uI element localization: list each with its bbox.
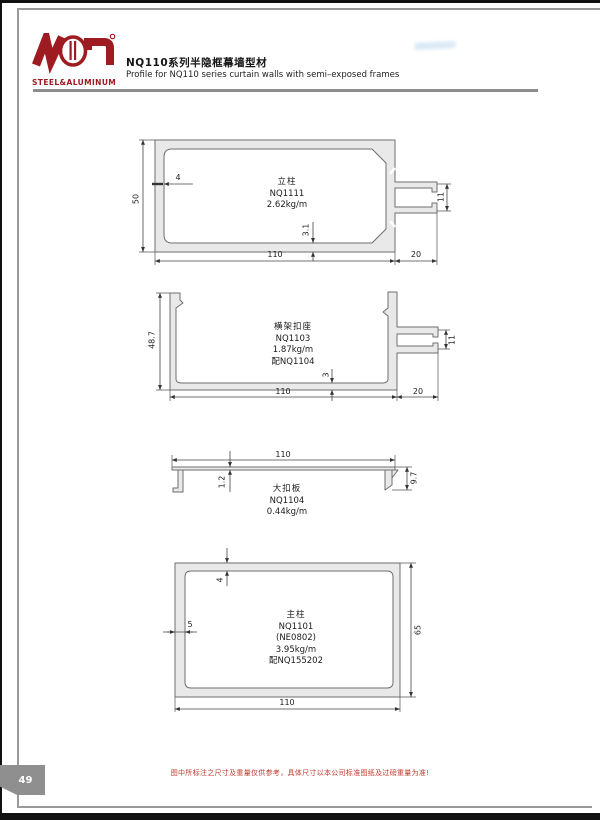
- profile-weight: 1.87kg/m: [243, 345, 343, 357]
- profile-weight: 2.62kg/m: [242, 200, 332, 212]
- profile-match: 配NQ1104: [243, 357, 343, 369]
- dim-tab-length-label: 20: [413, 387, 423, 396]
- dim-width-label: 110: [275, 450, 290, 459]
- dim-side-wall-label: 5: [187, 620, 192, 629]
- profile-code: NQ1101: [246, 622, 346, 634]
- dim-wall-label: 4: [175, 173, 180, 182]
- profile-info-2: 横架扣座 NQ1103 1.87kg/m 配NQ1104: [243, 322, 343, 368]
- profile-info-4: 主柱 NQ1101 (NE0802) 3.95kg/m 配NQ155202: [246, 610, 346, 668]
- profile-outline: [172, 467, 395, 470]
- logo-glyph-stroke: [70, 41, 72, 60]
- page-title-en: Profile for NQ110 series curtain walls w…: [126, 70, 399, 80]
- footer-note: 图中所标注之尺寸及重量仅供参考，具体尺寸以本公司标准图纸及过磅重量为准!: [171, 768, 430, 778]
- dim-base-label: 3: [322, 372, 331, 377]
- dim-width-label: 110: [267, 250, 282, 259]
- dim-top-wall-label: 4: [216, 577, 225, 582]
- catalog-page: STEEL&ALUMINUM NQ110系列半隐框幕墙型材 Profile fo…: [0, 0, 600, 820]
- profile-right-leg: [385, 470, 392, 490]
- profile-code: NQ1111: [242, 189, 332, 201]
- profile-weight: 0.44kg/m: [237, 507, 337, 519]
- profile-alt-code: (NE0802): [246, 633, 346, 645]
- profile-left-leg: [173, 470, 183, 492]
- profile-code: NQ1104: [237, 496, 337, 508]
- dim-tab-gap-label: 11: [448, 335, 457, 345]
- logo: STEEL&ALUMINUM: [32, 33, 122, 89]
- dim-width-label: 110: [275, 387, 290, 396]
- dim-leg-label: 9.7: [410, 472, 419, 485]
- logo-trademark-icon: [110, 34, 114, 38]
- profile-right-gusset: [392, 470, 398, 478]
- scan-artifact: [414, 41, 456, 50]
- profile-match: 配NQ155202: [246, 656, 346, 668]
- logo-hook-shape: [88, 42, 110, 65]
- profile-info-3: 大扣板 NQ1104 0.44kg/m: [237, 484, 337, 519]
- scan-edge-left: [0, 0, 2, 813]
- dim-tab-length-label: 20: [411, 250, 421, 259]
- page-title-cn: NQ110系列半隐框幕墙型材: [126, 55, 267, 70]
- dim-web-label: 3.1: [302, 224, 311, 237]
- profile-name: 横架扣座: [243, 322, 343, 334]
- scan-edge-top: [0, 0, 600, 3]
- page-border-left: [17, 8, 19, 807]
- dim-width-label: 110: [279, 698, 294, 707]
- logo-ring: [61, 37, 86, 65]
- scan-edge-bottom: [0, 813, 600, 820]
- page-border-bottom: [17, 806, 592, 808]
- profile-name: 立柱: [242, 177, 332, 189]
- page-number: 49: [19, 775, 33, 786]
- dim-height-label: 48.7: [148, 331, 157, 349]
- dim-thickness-label: 1.2: [218, 476, 227, 489]
- dim-height-label: 65: [414, 625, 423, 635]
- dim-tab-gap-label: 11: [437, 192, 446, 202]
- profile-info-1: 立柱 NQ1111 2.62kg/m: [242, 177, 332, 212]
- profile-name: 大扣板: [237, 484, 337, 496]
- logo-wordmark: STEEL&ALUMINUM: [32, 78, 122, 87]
- dim-height-label: 50: [132, 194, 141, 204]
- header-rule: [33, 89, 538, 92]
- page-number-tab: 49: [0, 765, 45, 795]
- logo-glyph-stroke: [74, 41, 76, 60]
- logo-n-shape: [36, 37, 62, 65]
- page-border-top: [17, 8, 600, 10]
- profile-name: 主柱: [246, 610, 346, 622]
- profile-weight: 3.95kg/m: [246, 645, 346, 657]
- logo-icon: [32, 33, 116, 77]
- profile-code: NQ1103: [243, 334, 343, 346]
